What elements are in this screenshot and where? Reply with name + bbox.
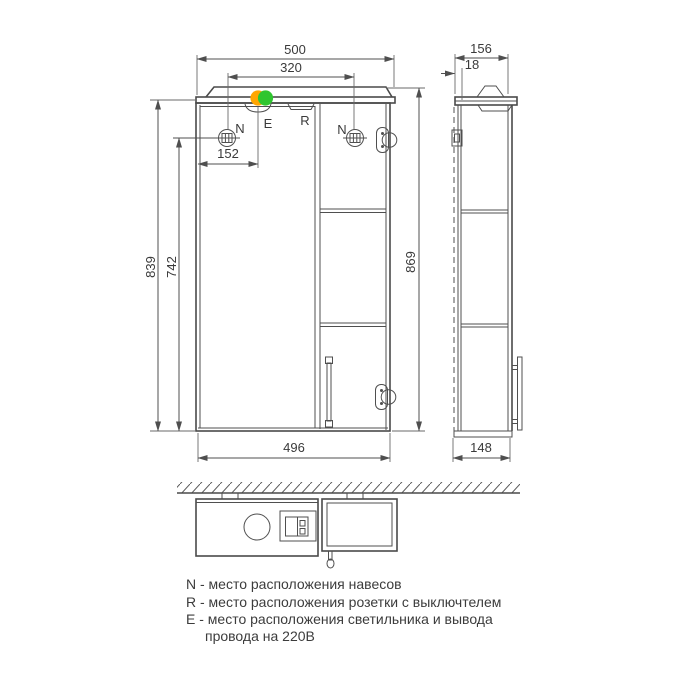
mirror-cabinet-drawing: N N E R 500 320 152 839 bbox=[0, 0, 700, 700]
legend-line-socket: R - место расположения розетки с выключт… bbox=[186, 594, 501, 610]
label-socket: R bbox=[300, 113, 309, 128]
side-view bbox=[452, 86, 522, 437]
svg-text:500: 500 bbox=[284, 42, 306, 57]
dim-hanger-height: 742 bbox=[164, 138, 179, 431]
svg-text:156: 156 bbox=[470, 41, 492, 56]
hanger-symbol-left bbox=[173, 130, 240, 147]
plan-socket-with-switch bbox=[280, 511, 316, 541]
side-bottom-plinth bbox=[454, 431, 512, 437]
legend: N - место расположения навесов R - место… bbox=[186, 576, 501, 644]
plan-view bbox=[177, 482, 520, 568]
front-dimensions: 500 320 152 839 742 869 bbox=[143, 42, 425, 462]
svg-text:496: 496 bbox=[283, 440, 305, 455]
legend-line-lamp: E - место расположения светильника и выв… bbox=[186, 611, 493, 627]
wall-bracket-left bbox=[222, 493, 238, 499]
front-cornice bbox=[206, 87, 392, 97]
plan-lamp-circle bbox=[244, 514, 270, 540]
label-hanger-right: N bbox=[337, 122, 346, 137]
svg-text:148: 148 bbox=[470, 440, 492, 455]
side-lamp-lip bbox=[478, 105, 512, 111]
plan-left-section bbox=[196, 499, 318, 556]
plan-door-section bbox=[322, 499, 397, 551]
marker-green-dot bbox=[258, 90, 273, 105]
dim-hanger-spacing: 320 bbox=[228, 60, 354, 129]
side-lamp-profile bbox=[477, 86, 504, 97]
technical-drawing-page: N N E R 500 320 152 839 bbox=[0, 0, 700, 700]
svg-text:152: 152 bbox=[217, 146, 239, 161]
dim-door-thickness: 18 bbox=[441, 57, 479, 100]
label-lamp: E bbox=[264, 116, 273, 131]
label-hanger-left: N bbox=[235, 121, 244, 136]
svg-text:742: 742 bbox=[164, 256, 179, 278]
side-shelves bbox=[461, 210, 508, 327]
svg-text:320: 320 bbox=[280, 60, 302, 75]
front-view: N N E R bbox=[173, 87, 397, 431]
svg-text:18: 18 bbox=[465, 57, 479, 72]
dim-total-height: 869 bbox=[386, 88, 425, 431]
legend-line-lamp-cont: провода на 220В bbox=[205, 628, 315, 644]
svg-text:869: 869 bbox=[403, 251, 418, 273]
door-handle-front bbox=[326, 357, 333, 427]
dim-side-total-depth: 156 bbox=[455, 41, 508, 94]
plan-door-handle bbox=[327, 551, 334, 568]
latch-top bbox=[377, 128, 397, 153]
wall-hatching bbox=[177, 482, 520, 493]
front-cornice-band bbox=[196, 97, 395, 103]
front-shelves bbox=[320, 209, 386, 327]
legend-line-hangers: N - место расположения навесов bbox=[186, 576, 402, 592]
svg-text:839: 839 bbox=[143, 256, 158, 278]
dim-cabinet-width: 496 bbox=[198, 433, 390, 462]
side-dimensions: 156 18 148 bbox=[441, 41, 510, 462]
dim-side-cabinet-depth: 148 bbox=[453, 438, 510, 462]
side-door-handle bbox=[512, 357, 522, 430]
wall-bracket-right bbox=[347, 493, 363, 499]
